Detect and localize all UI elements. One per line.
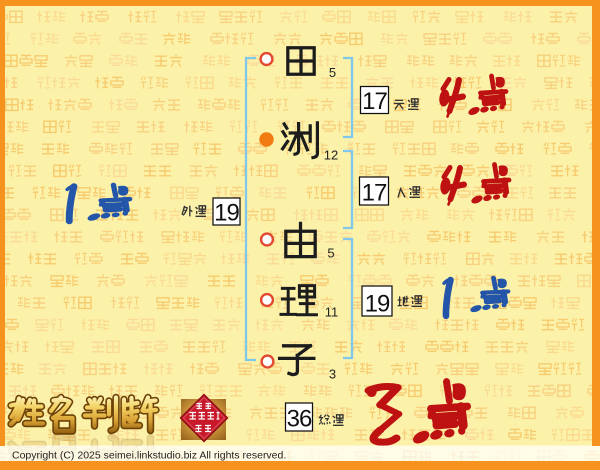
svg-text:Copyright (C) 2025 seimei.link: Copyright (C) 2025 seimei.linkstudio.biz… xyxy=(12,450,286,462)
svg-text:3: 3 xyxy=(329,367,336,382)
svg-text:17: 17 xyxy=(362,180,387,207)
svg-text:17: 17 xyxy=(362,88,387,115)
svg-text:5: 5 xyxy=(327,246,334,261)
svg-text:11: 11 xyxy=(325,305,339,320)
svg-text:12: 12 xyxy=(324,148,338,163)
svg-text:19: 19 xyxy=(214,200,239,227)
svg-text:36: 36 xyxy=(287,406,312,433)
svg-text:5: 5 xyxy=(329,65,336,80)
svg-text:19: 19 xyxy=(365,291,390,318)
